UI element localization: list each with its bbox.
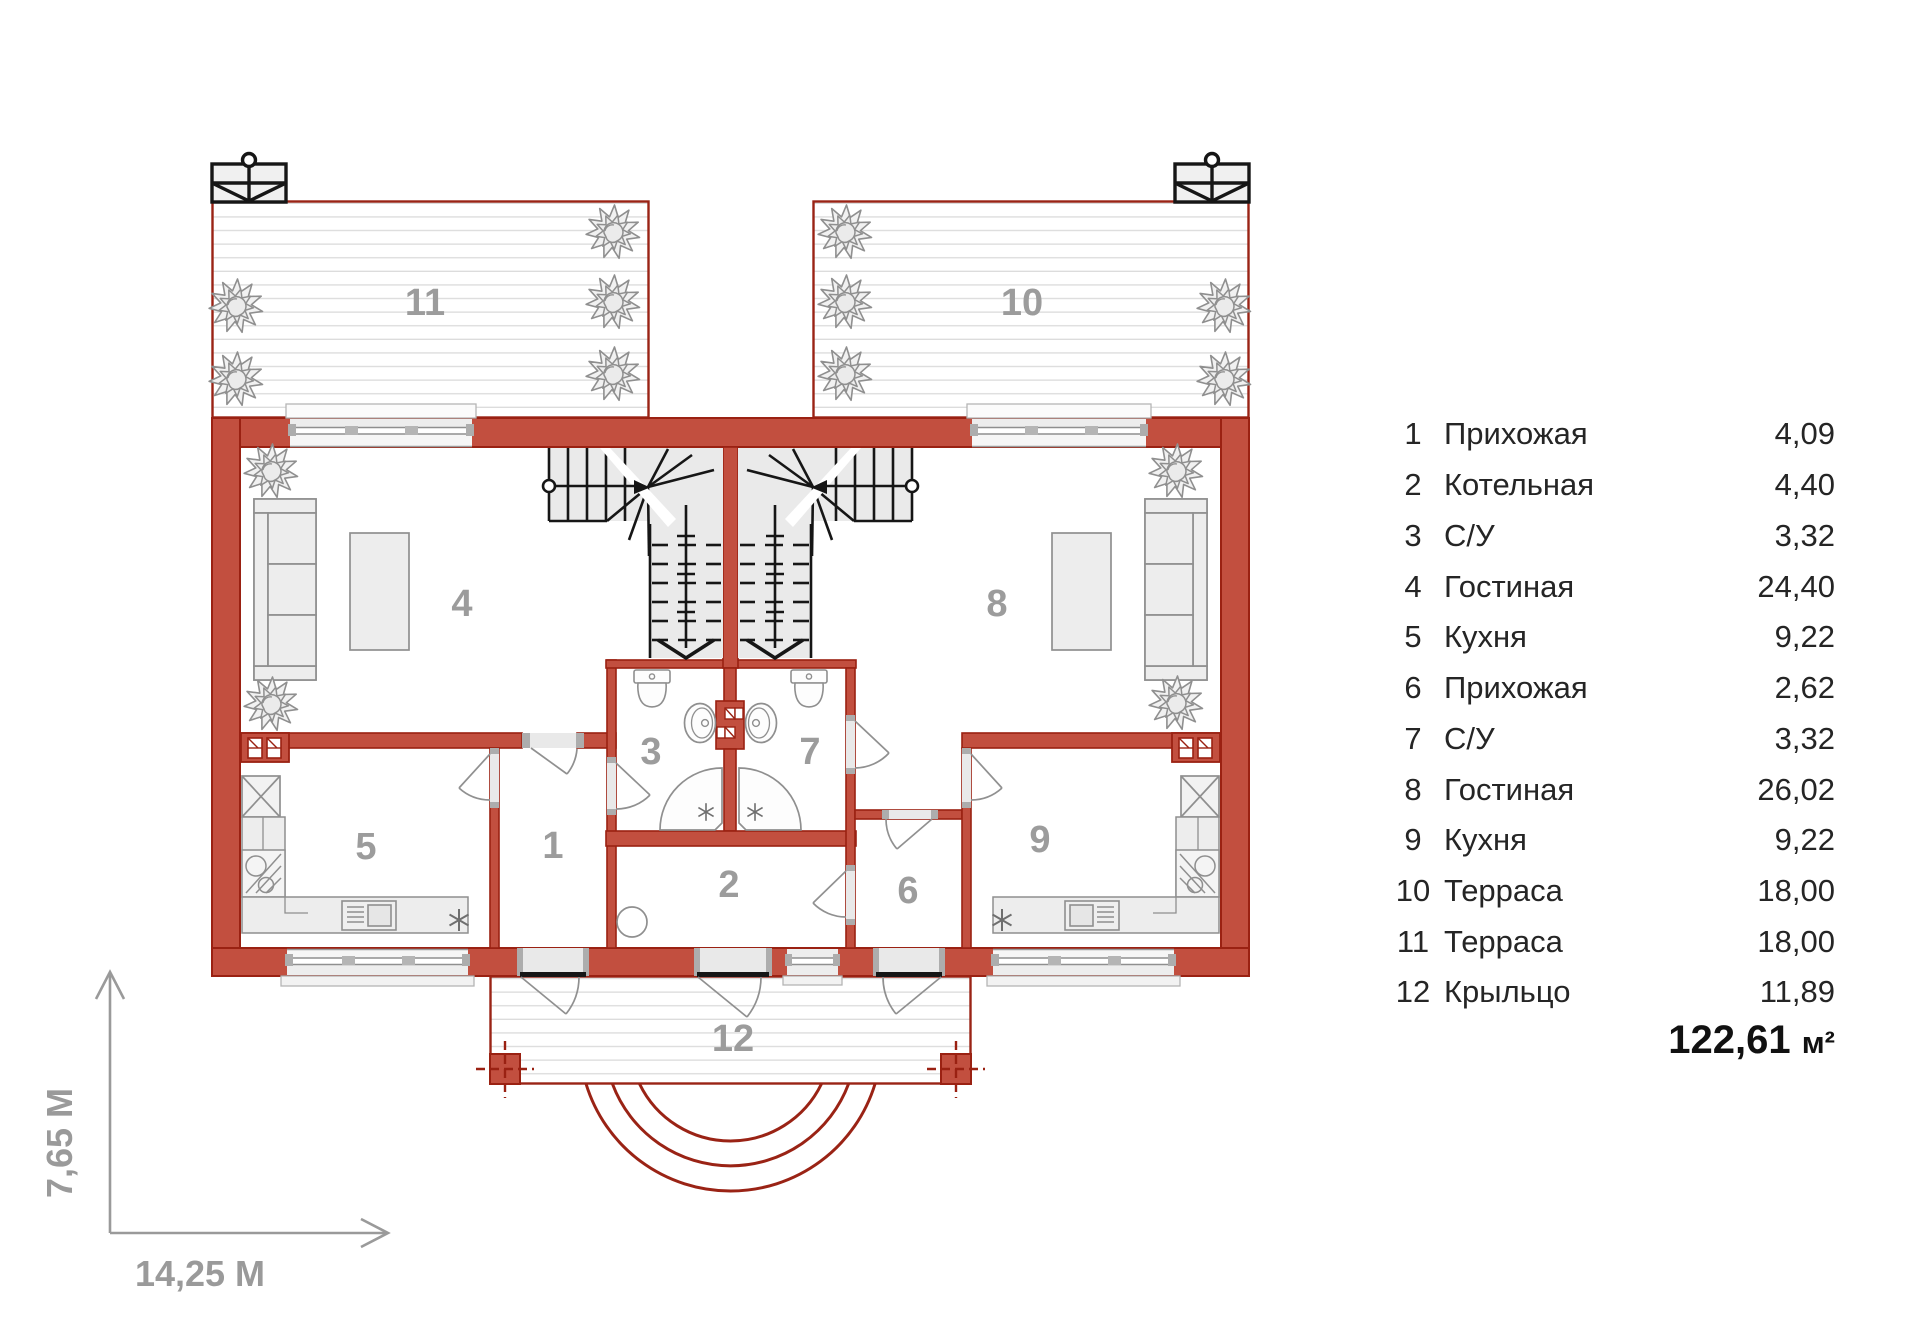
svg-text:5: 5 <box>355 826 376 868</box>
svg-text:6: 6 <box>897 870 918 912</box>
svg-text:10: 10 <box>1001 282 1043 324</box>
svg-text:Кухня: Кухня <box>1444 822 1527 857</box>
svg-text:4,40: 4,40 <box>1775 467 1835 502</box>
svg-text:Прихожая: Прихожая <box>1444 670 1588 705</box>
svg-text:С/У: С/У <box>1444 721 1495 756</box>
svg-text:Терраса: Терраса <box>1444 873 1564 908</box>
svg-text:9,22: 9,22 <box>1775 822 1835 857</box>
svg-text:18,00: 18,00 <box>1757 873 1835 908</box>
svg-text:7: 7 <box>799 731 820 773</box>
svg-text:5: 5 <box>1404 619 1421 654</box>
svg-text:7,65 М: 7,65 М <box>39 1088 80 1198</box>
svg-text:9: 9 <box>1029 819 1050 861</box>
svg-text:2,62: 2,62 <box>1775 670 1835 705</box>
svg-text:18,00: 18,00 <box>1757 924 1835 959</box>
svg-text:1: 1 <box>1404 416 1421 451</box>
svg-text:11: 11 <box>405 282 445 324</box>
svg-text:6: 6 <box>1404 670 1421 705</box>
svg-text:24,40: 24,40 <box>1757 569 1835 604</box>
svg-text:8: 8 <box>1404 772 1421 807</box>
svg-text:2: 2 <box>1404 467 1421 502</box>
svg-text:Крыльцо: Крыльцо <box>1444 974 1570 1009</box>
svg-text:7: 7 <box>1404 721 1421 756</box>
svg-text:4: 4 <box>1404 569 1421 604</box>
svg-text:8: 8 <box>986 583 1007 625</box>
svg-text:14,25 М: 14,25 М <box>135 1253 265 1294</box>
svg-text:4: 4 <box>451 583 472 625</box>
svg-text:11,89: 11,89 <box>1760 974 1835 1009</box>
svg-text:Гостиная: Гостиная <box>1444 772 1574 807</box>
svg-text:С/У: С/У <box>1444 518 1495 553</box>
svg-text:4,09: 4,09 <box>1775 416 1835 451</box>
svg-text:3: 3 <box>640 731 661 773</box>
svg-text:2: 2 <box>718 864 739 906</box>
svg-text:9,22: 9,22 <box>1775 619 1835 654</box>
svg-text:Кухня: Кухня <box>1444 619 1527 654</box>
svg-text:Терраса: Терраса <box>1444 924 1564 959</box>
svg-text:12: 12 <box>712 1018 754 1060</box>
svg-text:9: 9 <box>1404 822 1421 857</box>
svg-text:3: 3 <box>1404 518 1421 553</box>
svg-text:10: 10 <box>1396 873 1430 908</box>
svg-text:Котельная: Котельная <box>1444 467 1594 502</box>
svg-text:Гостиная: Гостиная <box>1444 569 1574 604</box>
svg-text:12: 12 <box>1396 974 1430 1009</box>
svg-text:Прихожая: Прихожая <box>1444 416 1588 451</box>
svg-text:3,32: 3,32 <box>1775 518 1835 553</box>
svg-text:26,02: 26,02 <box>1757 772 1835 807</box>
svg-text:1: 1 <box>542 825 563 867</box>
svg-text:122,61 м²: 122,61 м² <box>1668 1018 1835 1062</box>
svg-text:3,32: 3,32 <box>1775 721 1835 756</box>
svg-text:11: 11 <box>1397 924 1429 959</box>
